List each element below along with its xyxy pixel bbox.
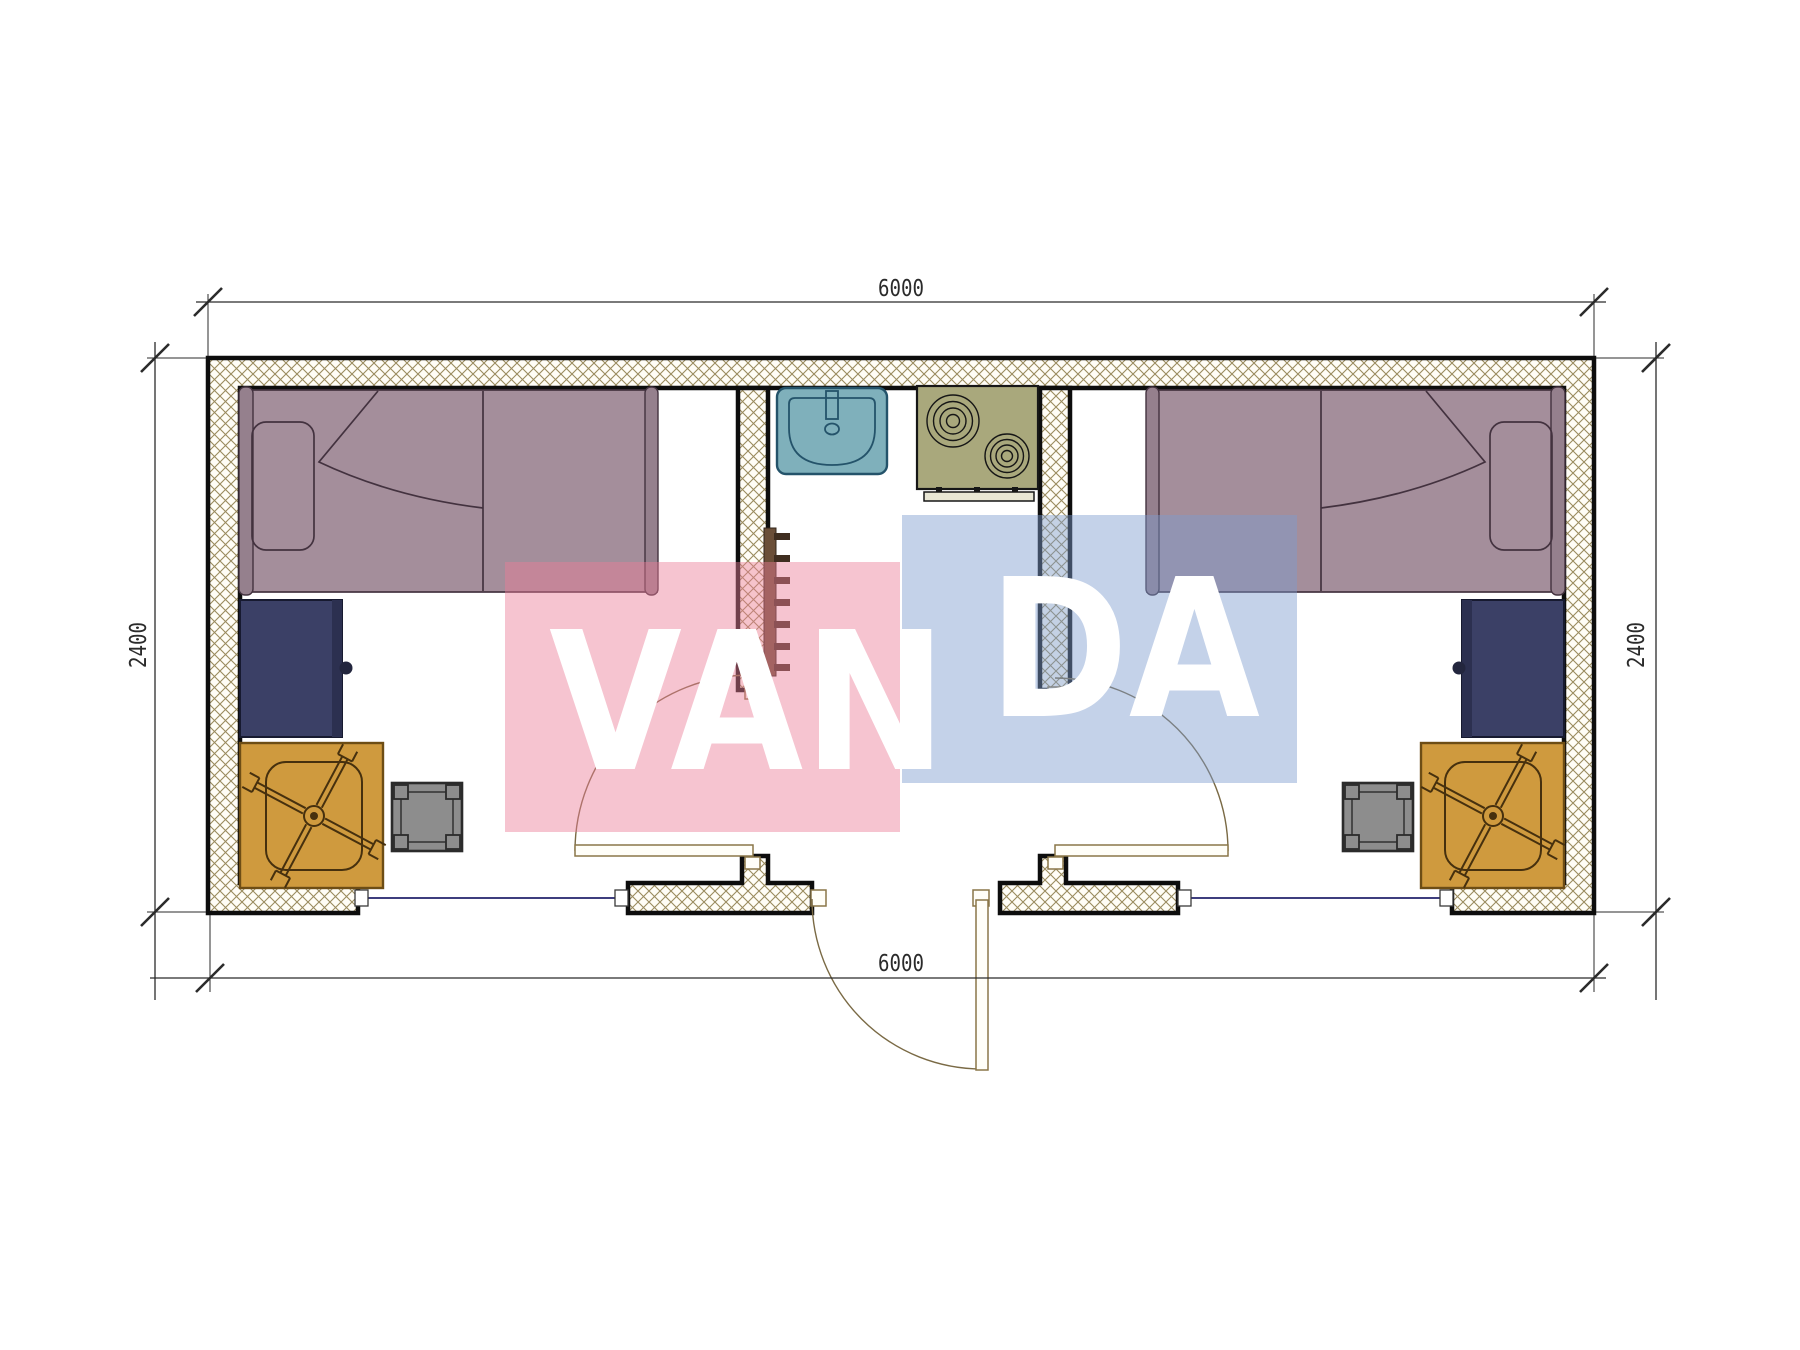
dimension-left-value: 2400 bbox=[126, 622, 152, 668]
cabinet-right bbox=[1453, 600, 1565, 737]
stool-right bbox=[1343, 783, 1413, 851]
cabinet-right-body bbox=[1462, 600, 1564, 737]
window-frame bbox=[1178, 890, 1191, 906]
floor-plan-drawing: 6000 6000 2400 2400 bbox=[0, 0, 1800, 1350]
window-frame bbox=[615, 890, 628, 906]
cabinet-left-body bbox=[240, 600, 342, 737]
cabinet-left bbox=[240, 600, 353, 737]
watermark-text-right: DA bbox=[988, 539, 1260, 762]
window-frame bbox=[355, 890, 368, 906]
watermark: VAN DA bbox=[505, 515, 1297, 832]
entry-wall-right-tee bbox=[1000, 856, 1178, 913]
entrance-door-swing-arc bbox=[812, 899, 982, 1069]
bed-left-mattress bbox=[240, 390, 657, 592]
floor-plan-canvas: 6000 6000 2400 2400 bbox=[0, 0, 1800, 1350]
cooktop-control-panel bbox=[924, 492, 1034, 501]
entry-wall-left-tee bbox=[628, 856, 812, 913]
door-right-frame-bottom bbox=[1048, 857, 1063, 869]
desk-right bbox=[1421, 743, 1565, 888]
cabinet-right-knob bbox=[1453, 662, 1466, 675]
windows bbox=[355, 890, 1453, 906]
entrance-door-frame-left bbox=[811, 890, 826, 906]
dimension-right-value: 2400 bbox=[1624, 622, 1650, 668]
wash-basin bbox=[777, 388, 887, 474]
door-left-frame-bottom bbox=[745, 857, 760, 869]
dimension-top: 6000 bbox=[194, 276, 1608, 356]
dimension-top-value: 6000 bbox=[878, 276, 924, 302]
stool-left bbox=[392, 783, 462, 851]
desk-left bbox=[240, 743, 386, 888]
dimension-bottom: 6000 bbox=[150, 915, 1608, 992]
wash-basin-counter bbox=[777, 388, 887, 474]
cabinet-left-knob bbox=[340, 662, 353, 675]
dimension-left: 2400 bbox=[126, 342, 206, 1000]
bed-left-headboard bbox=[239, 387, 253, 595]
door-right-leaf bbox=[1055, 845, 1228, 856]
entrance-door bbox=[811, 890, 989, 1070]
cooktop bbox=[917, 386, 1038, 501]
dimension-right: 2400 bbox=[1596, 342, 1670, 1000]
entrance-door-leaf bbox=[976, 900, 988, 1070]
bed-right-headboard bbox=[1551, 387, 1565, 595]
watermark-text-left: VAN bbox=[549, 592, 947, 815]
door-left-leaf bbox=[575, 845, 753, 856]
dimension-bottom-value: 6000 bbox=[878, 951, 924, 977]
window-frame bbox=[1440, 890, 1453, 906]
